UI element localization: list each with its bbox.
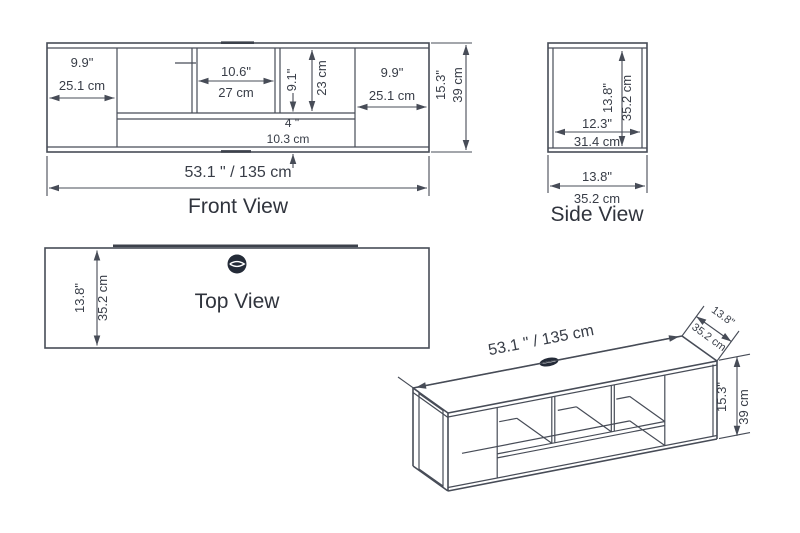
- dim-top-depth-in: 13.8": [72, 283, 87, 313]
- dim-right-width-cm: 25.1 cm: [369, 88, 415, 103]
- dim-inner-height-cm: 23 cm: [314, 60, 329, 95]
- dim-side-inner-depth-in: 12.3": [582, 116, 612, 131]
- persp-dim-depth-cm: 35.2 cm: [689, 321, 728, 354]
- persp-dim-height-in: 15.3": [714, 382, 729, 412]
- front-view: 9.9" 25.1 cm 10.6" 27 cm 9.1" 23 cm 4 " …: [47, 43, 472, 218]
- dim-left-width-in: 9.9": [71, 55, 94, 70]
- dim-total-height-in: 15.3": [433, 70, 448, 100]
- dim-side-inner-height-cm: 35.2 cm: [619, 75, 634, 121]
- dim-side-inner-depth-cm: 31.4 cm: [574, 134, 620, 149]
- dim-inner-height-in: 9.1": [284, 68, 299, 91]
- persp-ext-width-left: [398, 377, 419, 392]
- top-view-label: Top View: [195, 290, 281, 313]
- dim-side-inner-height-in: 13.8": [600, 83, 615, 113]
- persp-top-face: [413, 336, 717, 413]
- front-view-label: Front View: [188, 195, 289, 218]
- dim-total-height-cm: 39 cm: [450, 67, 465, 102]
- dim-right-width-in: 9.9": [381, 65, 404, 80]
- dim-top-depth-cm: 35.2 cm: [95, 275, 110, 321]
- furniture-dimension-diagram: 9.9" 25.1 cm 10.6" 27 cm 9.1" 23 cm 4 " …: [0, 0, 800, 533]
- perspective-view: 53.1 " / 135 cm 13.8" 35.2 cm 15.3" 39 c…: [398, 304, 751, 491]
- persp-dim-height-cm: 39 cm: [736, 389, 751, 424]
- side-view: 13.8" 35.2 cm 12.3" 31.4 cm 13.8" 35.2 c…: [548, 43, 647, 226]
- persp-left-end-inner: [419, 394, 443, 487]
- dim-total-width: 53.1 " / 135 cm: [184, 164, 291, 181]
- dim-bottom-gap-in: 4 ": [285, 116, 299, 130]
- dim-middle-width-cm: 27 cm: [218, 85, 253, 100]
- top-view: 13.8" 35.2 cm Top View: [45, 246, 429, 348]
- persp-front-internals: [448, 365, 717, 488]
- dim-middle-width-in: 10.6": [221, 64, 251, 79]
- persp-dim-width: 53.1 " / 135 cm: [487, 322, 595, 359]
- dim-side-total-depth-in: 13.8": [582, 169, 612, 184]
- dim-left-width-cm: 25.1 cm: [59, 78, 105, 93]
- dim-bottom-gap-cm: 10.3 cm: [267, 132, 310, 146]
- side-view-label: Side View: [550, 203, 644, 226]
- technical-drawing-page: 9.9" 25.1 cm 10.6" 27 cm 9.1" 23 cm 4 " …: [0, 0, 800, 533]
- persp-dim-depth-in: 13.8": [709, 304, 737, 329]
- persp-top-thickness: [413, 365, 717, 418]
- persp-front-face: [448, 361, 717, 491]
